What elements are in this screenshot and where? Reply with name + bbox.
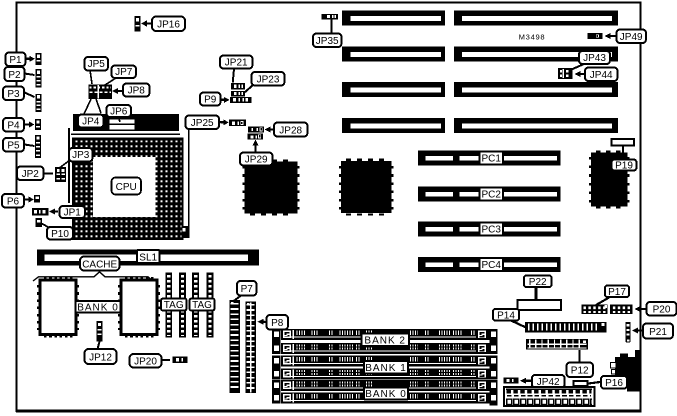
svg-text:P17: P17: [608, 287, 626, 298]
svg-text:PC1: PC1: [481, 154, 501, 165]
svg-text:JP43: JP43: [583, 53, 606, 64]
svg-text:P16: P16: [605, 378, 623, 389]
svg-text:JP4: JP4: [82, 117, 100, 128]
svg-text:P20: P20: [653, 304, 671, 315]
svg-text:BANK 0: BANK 0: [365, 389, 407, 400]
svg-text:JP3: JP3: [72, 150, 90, 161]
svg-text:BANK 1: BANK 1: [365, 363, 407, 374]
svg-text:P3: P3: [7, 89, 20, 100]
svg-text:JP5: JP5: [88, 59, 106, 70]
svg-text:JP1: JP1: [64, 208, 82, 219]
svg-text:JP20: JP20: [134, 356, 157, 367]
svg-text:JP7: JP7: [115, 67, 133, 78]
svg-text:CACHE: CACHE: [82, 259, 117, 270]
svg-text:BANK 0: BANK 0: [77, 302, 119, 313]
svg-text:JP23: JP23: [257, 74, 280, 85]
svg-text:P12: P12: [571, 366, 589, 377]
svg-text:P6: P6: [7, 196, 20, 207]
svg-text:P9: P9: [204, 95, 217, 106]
svg-text:JP8: JP8: [128, 86, 146, 97]
svg-text:M3498: M3498: [519, 33, 546, 42]
svg-text:PC4: PC4: [481, 260, 501, 271]
svg-text:P14: P14: [497, 310, 515, 321]
svg-text:P8: P8: [271, 318, 284, 329]
svg-text:JP25: JP25: [191, 118, 214, 129]
svg-text:JP2: JP2: [22, 169, 40, 180]
svg-text:CPU: CPU: [116, 182, 137, 193]
svg-text:PC2: PC2: [481, 190, 501, 201]
svg-text:JP35: JP35: [316, 36, 339, 47]
svg-text:JP49: JP49: [620, 32, 643, 43]
svg-text:P5: P5: [7, 140, 20, 151]
svg-text:P19: P19: [615, 161, 633, 172]
svg-text:P21: P21: [649, 327, 667, 338]
svg-text:JP29: JP29: [245, 155, 268, 166]
svg-text:JP12: JP12: [89, 353, 112, 364]
svg-text:P1: P1: [9, 55, 22, 66]
svg-text:PC3: PC3: [481, 225, 501, 236]
svg-text:TAG: TAG: [164, 300, 184, 311]
svg-text:P10: P10: [51, 229, 69, 240]
svg-text:SL1: SL1: [139, 252, 157, 263]
svg-text:JP16: JP16: [157, 20, 180, 31]
svg-text:P4: P4: [7, 120, 20, 131]
svg-text:JP21: JP21: [225, 58, 248, 69]
svg-text:BANK 2: BANK 2: [364, 336, 406, 347]
svg-text:JP28: JP28: [279, 125, 302, 136]
svg-text:JP6: JP6: [110, 106, 128, 117]
svg-text:TAG: TAG: [192, 300, 212, 311]
svg-text:P2: P2: [8, 70, 21, 81]
svg-text:P7: P7: [241, 284, 254, 295]
svg-text:P22: P22: [529, 277, 547, 288]
svg-text:JP44: JP44: [590, 70, 613, 81]
